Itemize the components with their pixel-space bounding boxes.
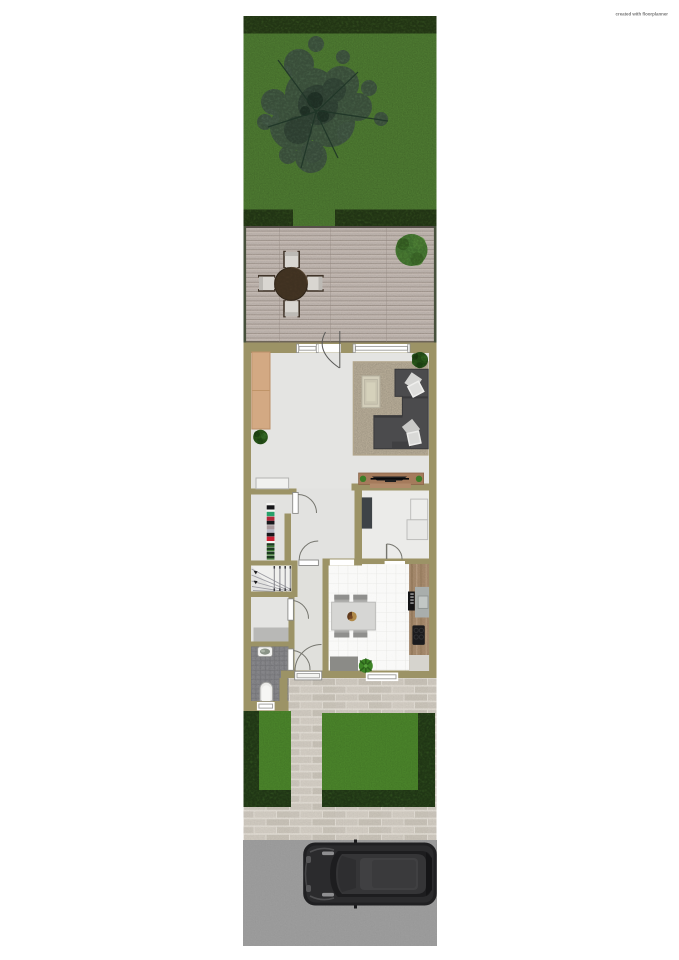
svg-text:created with floorplanner: created with floorplanner	[616, 12, 669, 17]
